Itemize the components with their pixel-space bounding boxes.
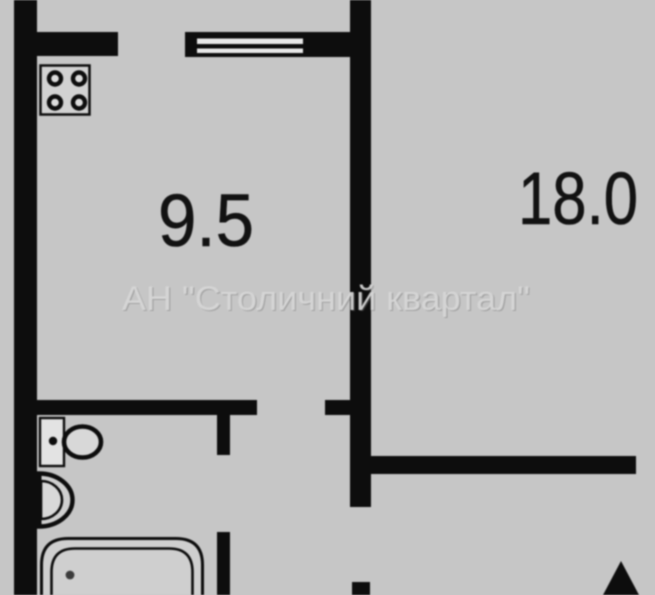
- svg-text:АН "Столичний квартал": АН "Столичний квартал": [122, 280, 530, 318]
- svg-text:9.5: 9.5: [158, 179, 254, 262]
- svg-text:18.0: 18.0: [518, 157, 638, 240]
